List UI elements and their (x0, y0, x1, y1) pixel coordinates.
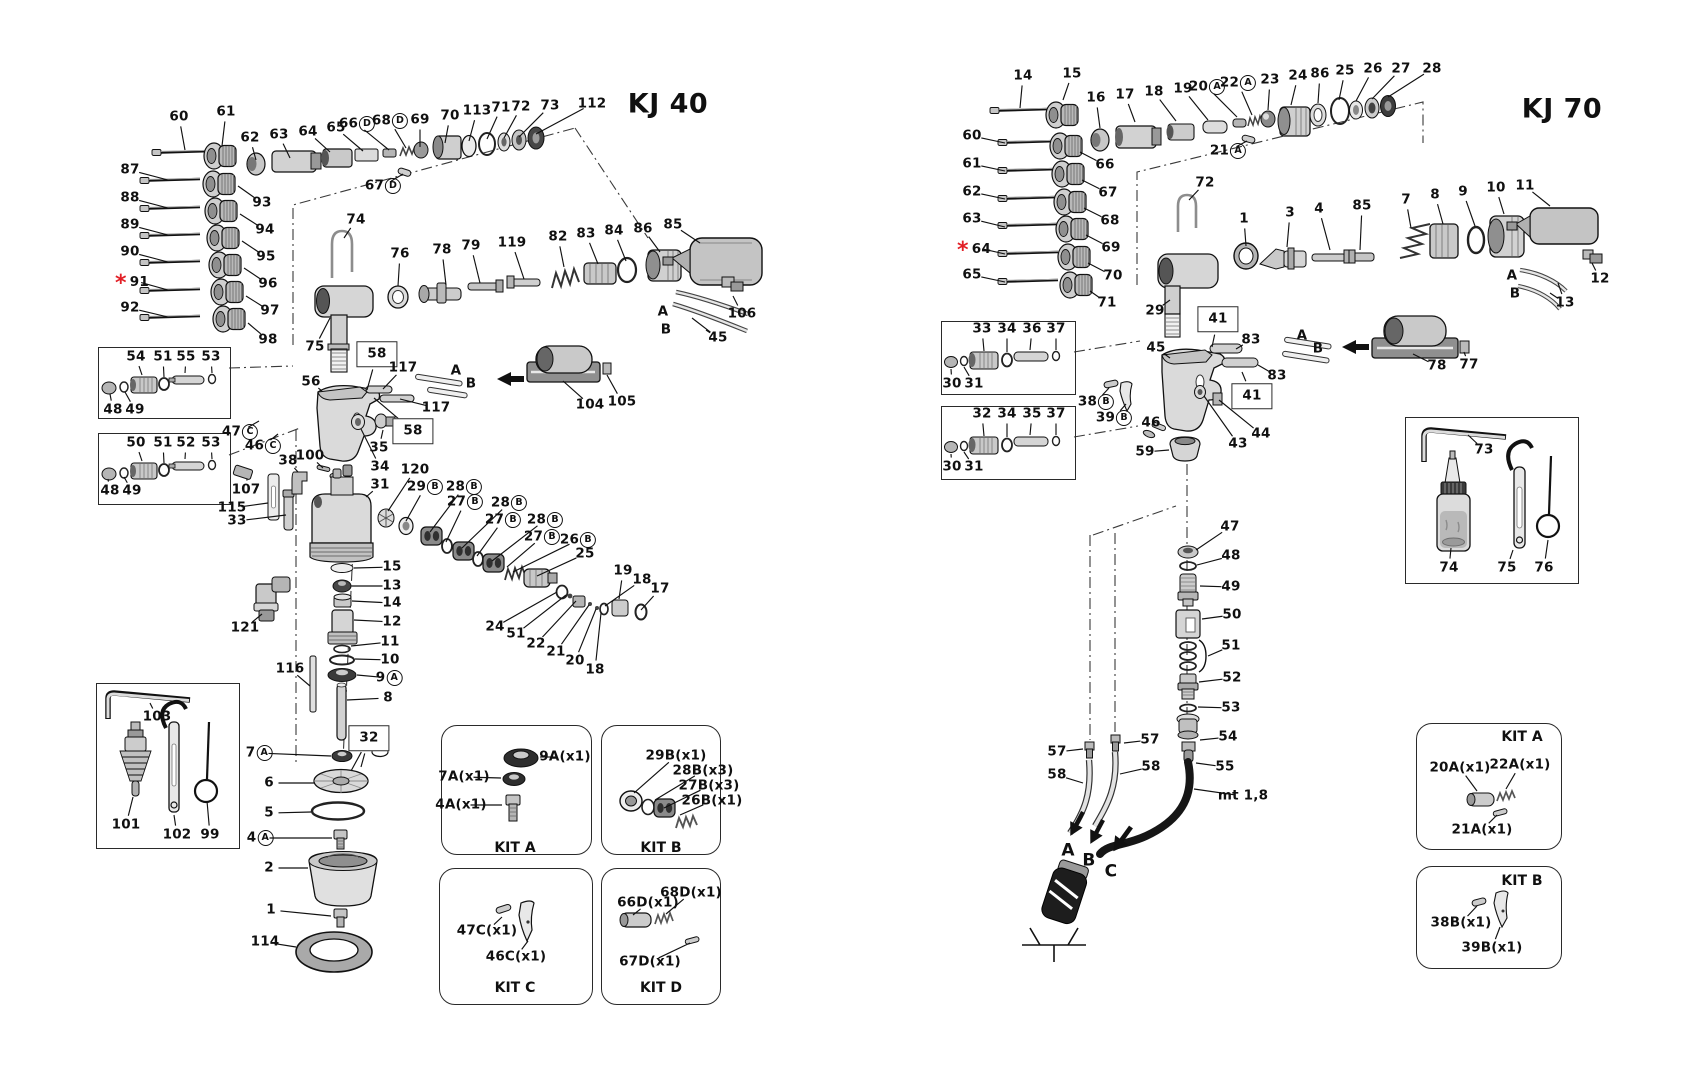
part-label: 32 (972, 407, 991, 421)
part-label: 3 (1285, 206, 1295, 220)
part-label: 31 (964, 377, 983, 391)
part-label: 43 (1228, 437, 1247, 451)
part-label: 72 (1195, 176, 1214, 190)
part-label: B (1510, 287, 1521, 301)
part-label: 37 (1046, 407, 1065, 421)
part-label: 69 (1101, 241, 1120, 255)
part-label: 23 (1260, 73, 1279, 87)
part-label: 27 (1391, 62, 1410, 76)
part-label: 24 (1288, 69, 1307, 83)
part-label: mt 1,8 (1218, 789, 1268, 803)
part-label: 47 (1220, 520, 1239, 534)
part-label: 17 (1115, 88, 1134, 102)
part-label: 62 (962, 185, 981, 199)
part-label: 38B (1078, 394, 1114, 410)
part-label: 48 (1221, 549, 1240, 563)
part-label: 39B (1096, 410, 1132, 426)
part-label: 37 (1046, 322, 1065, 336)
part-label: 34 (997, 322, 1016, 336)
circled-letter: A (1240, 75, 1256, 91)
circled-letter: A (1230, 143, 1246, 159)
part-label: 75 (1497, 561, 1516, 575)
part-label: 11 (1515, 179, 1534, 193)
part-label: 58 (1047, 768, 1066, 782)
part-label: 70 (1103, 269, 1122, 283)
part-label: 22A (1220, 75, 1256, 91)
part-label: 21A(x1) (1451, 823, 1512, 837)
part-label: 1 (1239, 212, 1249, 226)
part-label: 10 (1486, 181, 1505, 195)
part-label: 29 (1145, 304, 1164, 318)
part-label: 9 (1458, 185, 1468, 199)
part-label: 57 (1140, 733, 1159, 747)
part-label: 55 (1215, 760, 1234, 774)
part-label: 15 (1062, 67, 1081, 81)
part-label: 63 (962, 212, 981, 226)
part-label: 77 (1459, 358, 1478, 372)
part-label: 33 (972, 322, 991, 336)
part-label: 86 (1310, 67, 1329, 81)
part-label: 41 (1231, 383, 1272, 409)
part-label: 76 (1534, 561, 1553, 575)
part-label: A (1061, 843, 1074, 860)
part-label: 52 (1222, 671, 1241, 685)
part-label: 57 (1047, 745, 1066, 759)
part-label: 31 (964, 460, 983, 474)
part-label: 18 (1144, 85, 1163, 99)
exploded-parts-diagram: KIT AKIT BKIT CKIT DKIT AKIT B 606162636… (0, 0, 1691, 1069)
part-label: 83 (1267, 369, 1286, 383)
part-label: 35 (1022, 407, 1041, 421)
asterisk-marker: * (957, 238, 969, 263)
part-label: 45 (1146, 341, 1165, 355)
circled-letter: B (1116, 410, 1132, 426)
part-label: 61 (962, 157, 981, 171)
part-label: A (1297, 329, 1308, 343)
part-label: *64 (957, 236, 991, 258)
part-label: 34 (997, 407, 1016, 421)
part-label: 39B(x1) (1462, 941, 1523, 955)
part-label: 54 (1218, 730, 1237, 744)
part-label: 7 (1401, 193, 1411, 207)
part-label: 67 (1098, 186, 1117, 200)
part-label: 78 (1427, 359, 1446, 373)
part-label: 16 (1086, 91, 1105, 105)
part-label: 65 (962, 268, 981, 282)
kj40-title: KJ 40 (628, 89, 708, 120)
part-label: 74 (1439, 561, 1458, 575)
part-label: 21A (1210, 143, 1246, 159)
part-label: 8 (1430, 188, 1440, 202)
part-label: 60 (962, 129, 981, 143)
part-label: 73 (1474, 443, 1493, 457)
part-label: 50 (1222, 608, 1241, 622)
part-label: 20A(x1) (1429, 761, 1490, 775)
part-label: 28 (1422, 62, 1441, 76)
part-label: B (1082, 853, 1095, 870)
part-label: C (1105, 864, 1118, 881)
part-label: 36 (1022, 322, 1041, 336)
part-label: 53 (1221, 701, 1240, 715)
part-label: 22A(x1) (1489, 758, 1550, 772)
part-label: 85 (1352, 199, 1371, 213)
part-label: 44 (1251, 427, 1270, 441)
part-label: A (1507, 269, 1518, 283)
part-label: 12 (1590, 272, 1609, 286)
circled-letter: B (1098, 394, 1114, 410)
part-label: 59 (1135, 445, 1154, 459)
part-label: 30 (942, 377, 961, 391)
part-label: 49 (1221, 580, 1240, 594)
part-label: 51 (1221, 639, 1240, 653)
part-label: 66 (1095, 158, 1114, 172)
part-label: 71 (1097, 296, 1116, 310)
part-label: 41 (1197, 306, 1238, 332)
part-label: 68 (1100, 214, 1119, 228)
part-label: 83 (1241, 333, 1260, 347)
part-label: 38B(x1) (1431, 916, 1492, 930)
part-label: 25 (1335, 64, 1354, 78)
part-label: B (1313, 342, 1324, 356)
kj70-labels: 14151617181920A22A2324862526272821A60616… (0, 0, 1691, 1069)
part-label: 46 (1141, 416, 1160, 430)
part-label: 4 (1314, 202, 1324, 216)
part-label: 26 (1363, 62, 1382, 76)
part-label: 13 (1555, 296, 1574, 310)
part-label: 58 (1141, 760, 1160, 774)
kj70-title: KJ 70 (1522, 94, 1602, 125)
part-label: 14 (1013, 69, 1032, 83)
part-label: 30 (942, 460, 961, 474)
